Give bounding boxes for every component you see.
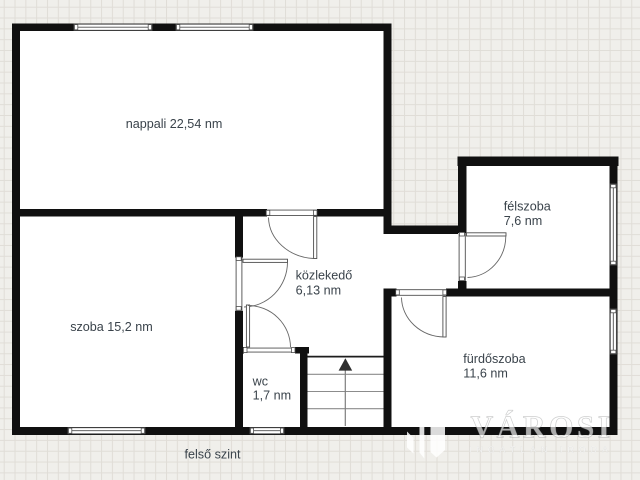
- svg-text:félszoba: félszoba: [504, 200, 551, 214]
- svg-text:11,6 nm: 11,6 nm: [463, 366, 508, 380]
- svg-text:INGATLAN IRODA: INGATLAN IRODA: [469, 444, 613, 454]
- svg-text:fürdőszoba: fürdőszoba: [463, 352, 525, 366]
- svg-text:nappali 22,54 nm: nappali 22,54 nm: [126, 117, 223, 131]
- svg-text:szoba 15,2 nm: szoba 15,2 nm: [70, 320, 153, 334]
- svg-text:VÁROSI: VÁROSI: [471, 410, 614, 445]
- svg-text:7,6 nm: 7,6 nm: [504, 214, 543, 228]
- svg-text:felső szint: felső szint: [185, 448, 241, 462]
- svg-text:6,13 nm: 6,13 nm: [296, 284, 342, 298]
- svg-text:közlekedő: közlekedő: [296, 269, 353, 283]
- svg-text:wc: wc: [252, 375, 268, 389]
- svg-text:1,7 nm: 1,7 nm: [253, 389, 292, 403]
